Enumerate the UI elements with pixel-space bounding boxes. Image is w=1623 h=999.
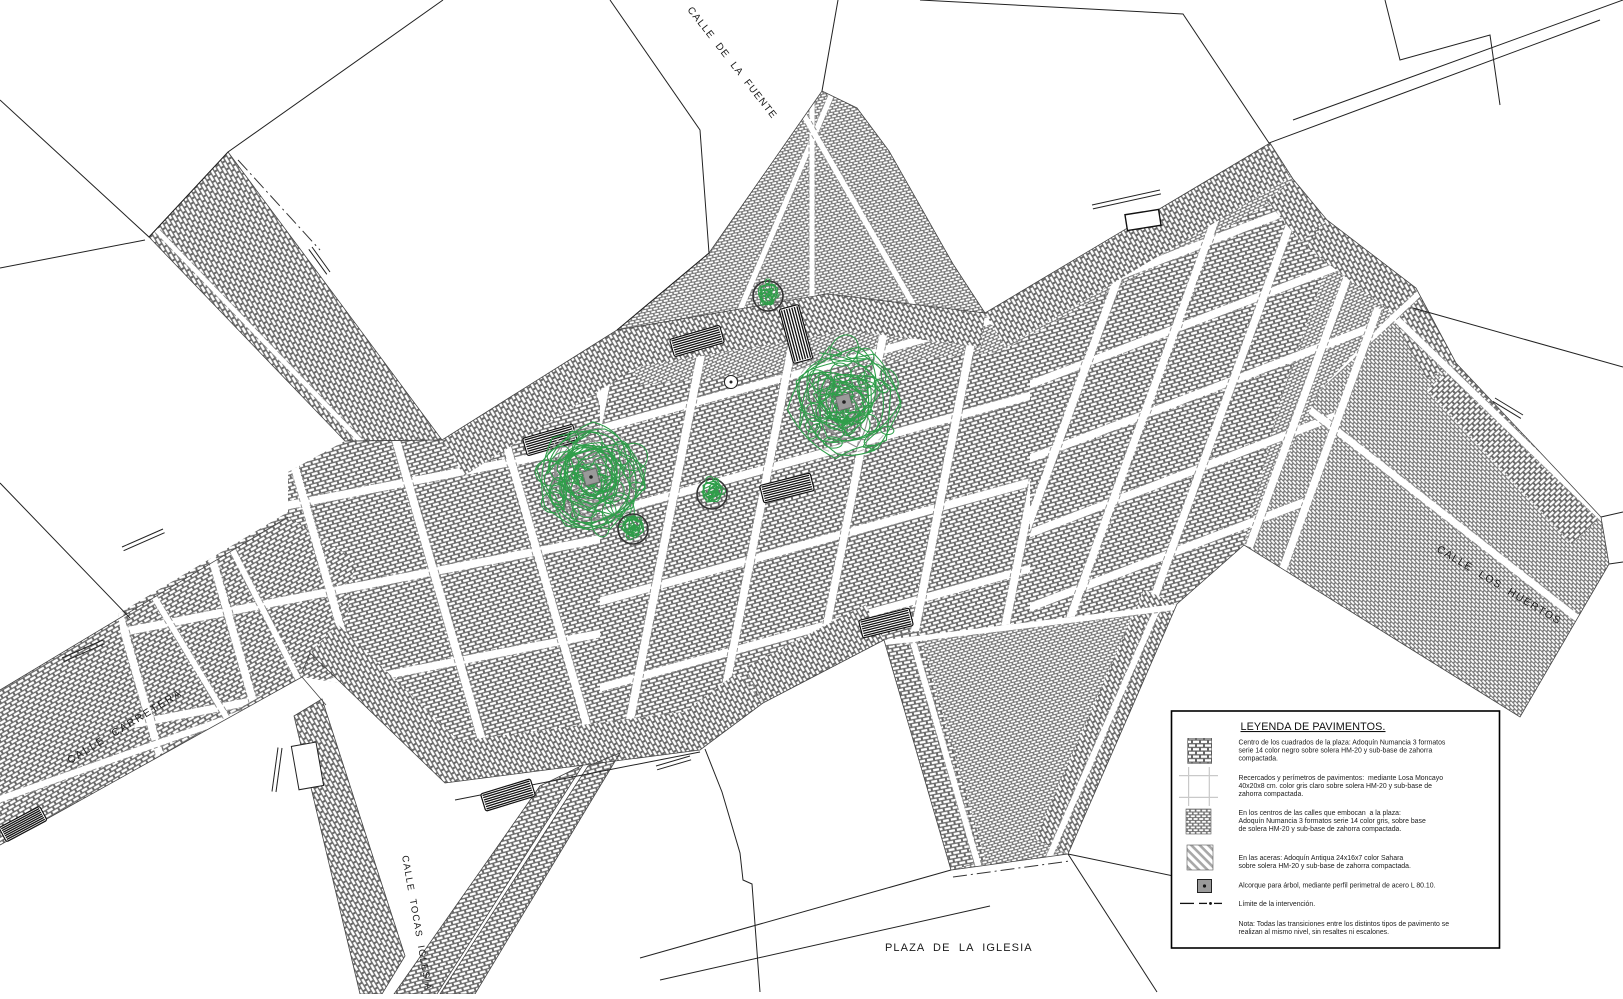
svg-text:LEYENDA DE PAVIMENTOS.: LEYENDA DE PAVIMENTOS.: [1241, 721, 1386, 733]
svg-text:En los centros de las calles q: En los centros de las calles que embocan…: [1239, 810, 1426, 833]
svg-text:En las aceras: Adoquín Antiqua: En las aceras: Adoquín Antiqua 24x16x7 c…: [1239, 855, 1411, 870]
svg-text:PLAZA DE LA IGLESIA: PLAZA DE LA IGLESIA: [885, 942, 1033, 954]
svg-text:Alcorque para árbol, mediante: Alcorque para árbol, mediante perfil per…: [1239, 883, 1436, 890]
svg-text:Límite de la intervención.: Límite de la intervención.: [1239, 901, 1316, 908]
